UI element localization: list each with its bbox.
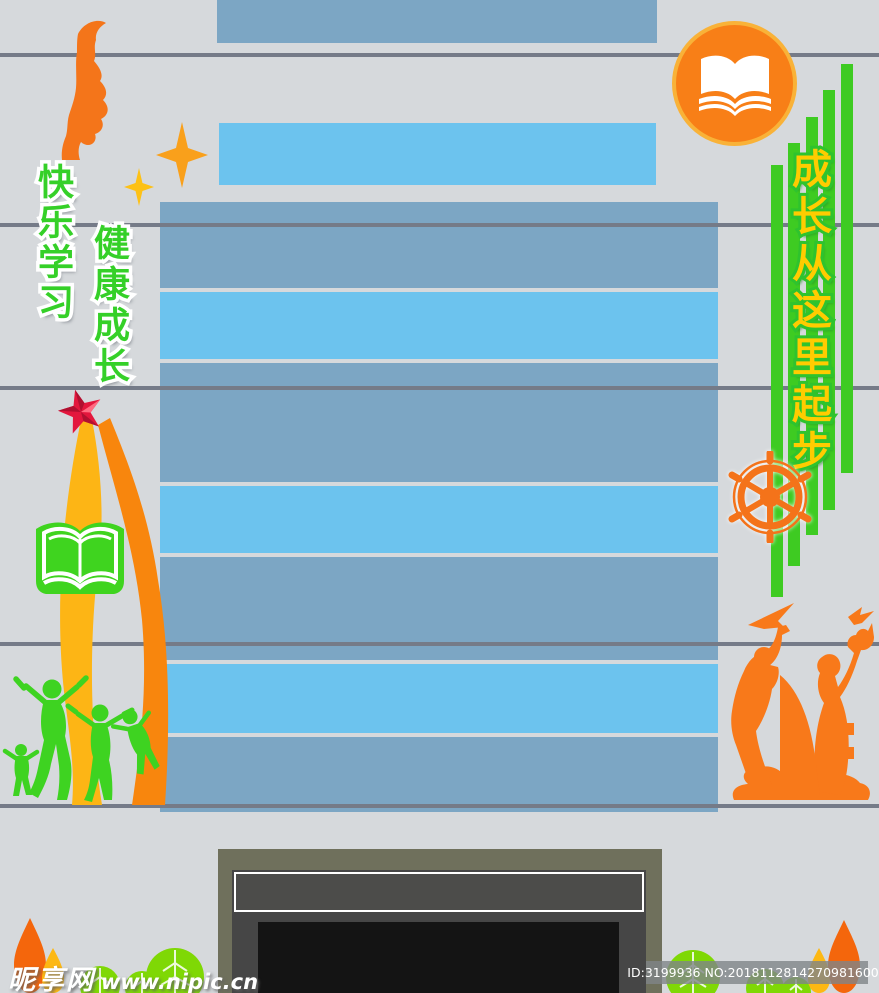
statue-silhouette-icon (720, 595, 879, 805)
face-profile-icon (50, 18, 132, 160)
slogan-right-text: 成长从这里起步 (788, 148, 828, 477)
panel-stripe (160, 363, 718, 482)
site-watermark: 昵享网www.nipic.cn (8, 958, 258, 993)
open-book-icon (30, 515, 130, 600)
watermark-site-name: 昵享网 (8, 965, 95, 993)
wall-seam-line (0, 386, 879, 390)
header-sign-strip (234, 872, 644, 912)
panel-stripe (160, 737, 718, 812)
slogan-left-primary-text: 快乐学习 (34, 163, 70, 323)
red-star-icon (52, 387, 110, 435)
blackboard-screen (258, 922, 619, 993)
panel-stripe (160, 292, 718, 359)
panel-stripe (160, 664, 718, 733)
watermark-site-url: www.nipic.cn (101, 970, 258, 993)
school-culture-wall-poster: 快乐学习 快乐学习 健康成长 健康成长 成长从这里起步 成长从这里起步 (0, 0, 879, 993)
growth-bar (841, 64, 853, 473)
open-book-icon (693, 50, 777, 118)
display-frame-inner (232, 870, 646, 993)
jumping-children-icon (0, 672, 160, 802)
image-id-text: ID:3199936 NO:20181128142709816000 (627, 965, 879, 980)
sparkle-star-icon (124, 166, 154, 208)
ship-wheel-icon (724, 451, 816, 543)
second-blue-bar (219, 123, 656, 185)
image-id-bar: ID:3199936 NO:20181128142709816000 (646, 961, 868, 984)
panel-stripe (160, 486, 718, 553)
slogan-left-secondary-text: 健康成长 (90, 224, 126, 388)
wall-seam-line (0, 223, 879, 227)
book-badge (672, 21, 797, 146)
top-blue-bar (217, 0, 657, 43)
sparkle-star-icon (156, 122, 208, 188)
panel-stripe (160, 202, 718, 288)
display-frame (218, 849, 662, 993)
central-panel (160, 202, 718, 812)
